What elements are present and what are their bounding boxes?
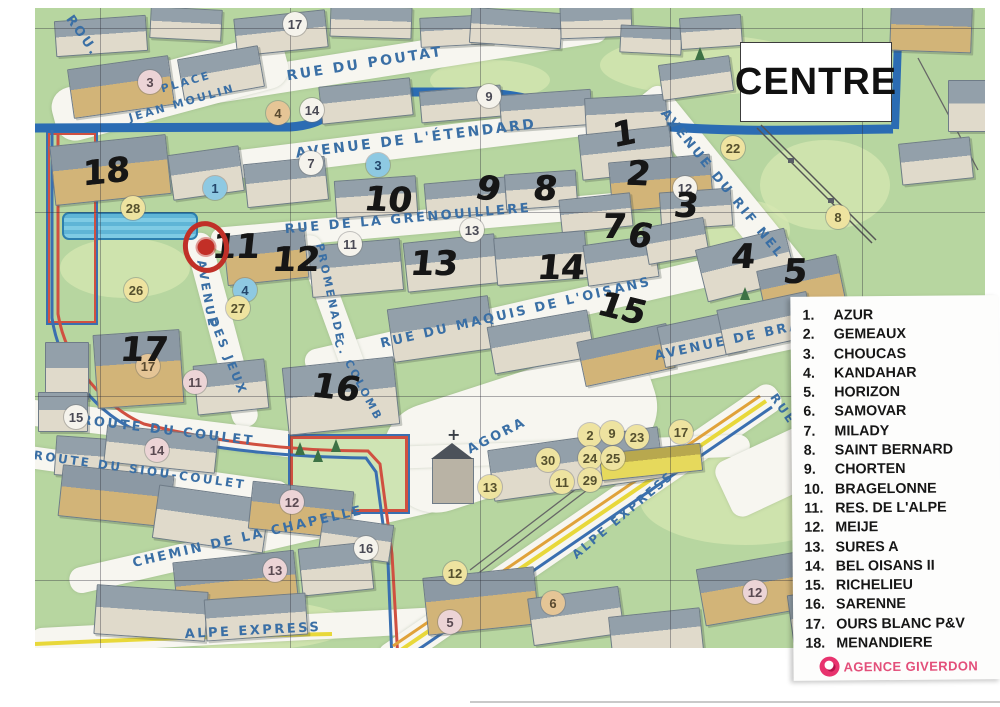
legend-item-label: HORIZON (834, 383, 900, 403)
legend-item-label: MILADY (834, 422, 889, 442)
legend-item-label: MEIJE (835, 518, 878, 538)
legend-item: 17.OURS BLANC P&V (805, 614, 1000, 635)
legend-item-label: GEMEAUX (834, 325, 906, 345)
legend-item-number: 16. (805, 596, 836, 616)
left-margin (0, 0, 35, 707)
legend-list: 1.AZUR2.GEMEAUX3.CHOUCAS4.KANDAHAR5.HORI… (802, 305, 1000, 654)
legend-item-label: SAINT BERNARD (835, 441, 954, 461)
legend-item-label: BEL OISANS II (836, 557, 935, 577)
legend-sheet: 1.AZUR2.GEMEAUX3.CHOUCAS4.KANDAHAR5.HORI… (790, 295, 1000, 681)
legend-item-number: 6. (803, 403, 834, 423)
legend-item-label: SAMOVAR (834, 402, 906, 422)
top-margin (0, 0, 1000, 8)
legend-item-number: 13. (804, 538, 835, 558)
legend-item: 6.SAMOVAR (803, 402, 999, 423)
legend-item: 18.MENANDIERE (805, 633, 1000, 654)
agency-branding: AGENCE GIVERDON (819, 655, 1000, 677)
legend-item-number: 4. (803, 364, 834, 384)
legend-item: 5.HORIZON (803, 382, 999, 403)
legend-item: 12.MEIJE (804, 517, 1000, 538)
agency-name: AGENCE GIVERDON (843, 658, 978, 674)
legend-item: 4.KANDAHAR (803, 363, 999, 384)
legend-item: 3.CHOUCAS (803, 344, 999, 365)
map-title-box: CENTRE (740, 42, 892, 122)
legend-item: 14.BEL OISANS II (805, 556, 1000, 577)
legend-item: 7.MILADY (803, 421, 999, 442)
legend-item-label: RICHELIEU (836, 576, 913, 596)
sports-court (290, 436, 408, 512)
legend-item-number: 5. (803, 384, 834, 404)
church-building (432, 458, 474, 504)
legend-item: 8.SAINT BERNARD (804, 440, 1000, 461)
page-title: CENTRE (735, 61, 897, 104)
pedestrian-zone-outline (48, 133, 96, 323)
legend-item-number: 11. (804, 500, 835, 520)
legend-item-number: 9. (804, 461, 835, 481)
legend-item-number: 8. (804, 442, 835, 462)
legend-item-number: 10. (804, 480, 835, 500)
legend-item: 10.BRAGELONNE (804, 479, 1000, 500)
legend-item-number: 2. (803, 326, 834, 346)
legend-item-number: 7. (803, 422, 834, 442)
scanned-map-page: ROU.RUE DU POUTATPLACEJEAN MOULINAVENUE … (0, 0, 1000, 707)
legend-item-label: CHOUCAS (834, 345, 906, 365)
legend-item-label: AZUR (833, 306, 873, 326)
legend-item-label: BRAGELONNE (835, 479, 937, 499)
legend-item-label: CHORTEN (835, 460, 906, 480)
legend-item: 13.SURES A (804, 537, 1000, 558)
legend-item-label: MENANDIERE (836, 634, 932, 654)
legend-item-number: 12. (804, 519, 835, 539)
legend-item: 9.CHORTEN (804, 459, 1000, 480)
legend-item: 16.SARENNE (805, 595, 1000, 616)
legend-item: 15.RICHELIEU (805, 575, 1000, 596)
legend-item-number: 17. (805, 615, 836, 635)
legend-item-label: SARENNE (836, 595, 906, 615)
legend-item: 11.RES. DE L'ALPE (804, 498, 1000, 519)
legend-item-label: SURES A (835, 538, 898, 558)
legend-item-label: RES. DE L'ALPE (835, 499, 947, 519)
legend-item-number: 14. (805, 557, 836, 577)
legend-item-number: 3. (803, 345, 834, 365)
scan-edge-line (470, 701, 1000, 703)
legend-item-number: 1. (802, 307, 833, 327)
agency-logo-icon (819, 657, 839, 677)
legend-item-label: OURS BLANC P&V (836, 614, 965, 634)
legend-item-number: 15. (805, 577, 836, 597)
legend-item: 1.AZUR (802, 305, 998, 326)
legend-item-number: 18. (805, 635, 836, 655)
legend-item: 2.GEMEAUX (803, 324, 999, 345)
legend-item-label: KANDAHAR (834, 364, 917, 384)
